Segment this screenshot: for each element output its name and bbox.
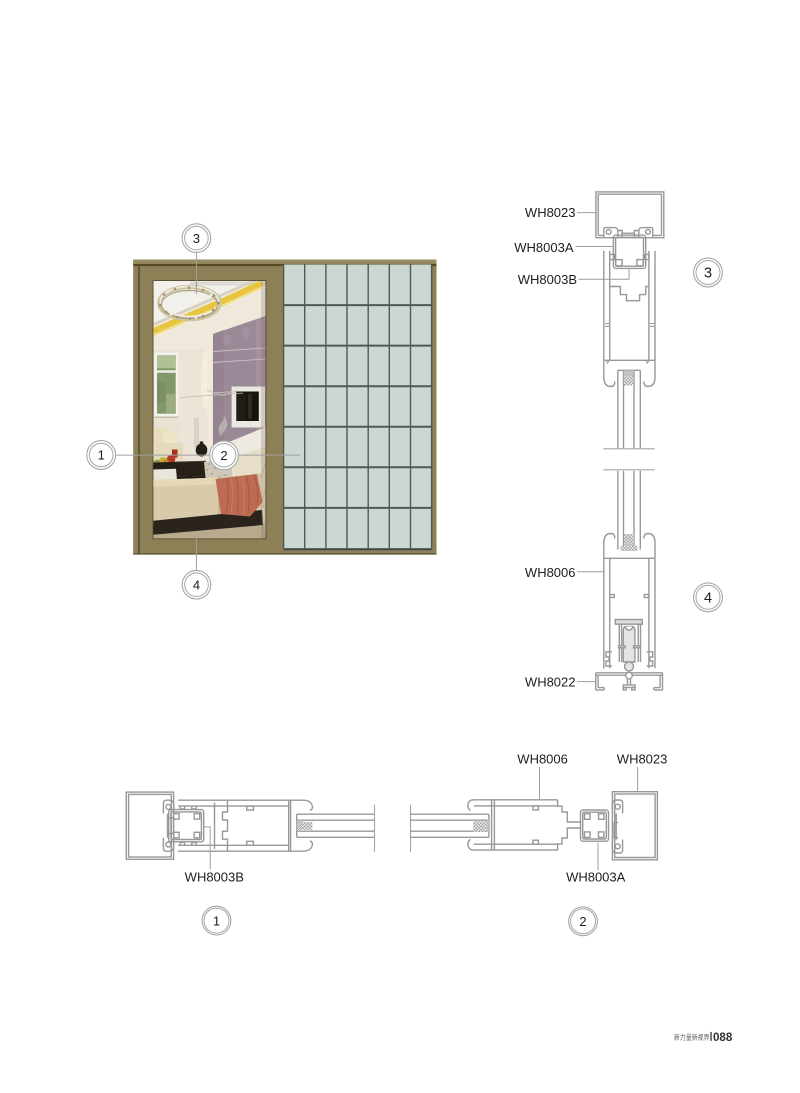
svg-text:WH8022: WH8022: [525, 675, 576, 690]
svg-text:2: 2: [579, 914, 586, 929]
svg-text:4: 4: [704, 591, 712, 607]
svg-text:WH8003B: WH8003B: [185, 870, 244, 885]
svg-text:088: 088: [713, 1031, 733, 1044]
svg-text:2: 2: [220, 448, 227, 463]
svg-text:WH8006: WH8006: [525, 565, 576, 580]
svg-text:WH8023: WH8023: [525, 205, 576, 220]
svg-text:1: 1: [213, 913, 220, 928]
svg-text:3: 3: [704, 266, 712, 282]
svg-text:WH8003B: WH8003B: [518, 272, 577, 287]
svg-text:WH8006: WH8006: [517, 752, 568, 767]
svg-text:WH8003A: WH8003A: [514, 240, 574, 255]
svg-text:4: 4: [193, 577, 200, 592]
svg-text:新力量新视界: 新力量新视界: [674, 1032, 710, 1041]
svg-text:WH8003A: WH8003A: [566, 870, 626, 885]
svg-text:1: 1: [98, 448, 105, 463]
svg-text:WH8023: WH8023: [617, 752, 668, 767]
svg-text:3: 3: [193, 231, 200, 246]
